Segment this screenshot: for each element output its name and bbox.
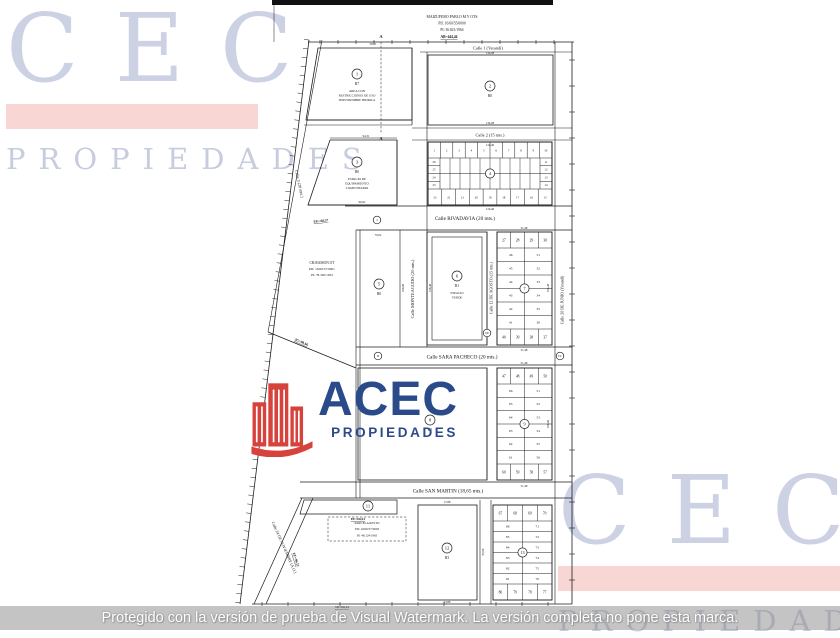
- trial-watermark-text: Protegido con la versión de prueba de Vi…: [102, 610, 739, 626]
- parcel-5-code: B0: [377, 292, 381, 296]
- lot-number: 30: [543, 238, 547, 242]
- monument-III-label: III: [485, 331, 488, 335]
- street-label-san_martin: Calle SAN MARTIN (18,65 mts.): [413, 488, 484, 495]
- lot-number: 47: [502, 374, 506, 378]
- listing-photo-page: { "watermark_cec": { "text": "CEC", "sub…: [0, 0, 840, 630]
- acec-logo: ACEC PROPIEDADES: [250, 377, 458, 457]
- lot-number: 11: [545, 160, 548, 164]
- plan-line: [268, 332, 356, 368]
- dimension-label: 51,48: [521, 484, 528, 489]
- lot-number: 51: [537, 389, 541, 393]
- street-label-sara_pacheco: Calle SARA PACHECO (20 mts.): [427, 354, 498, 361]
- lot-number: 37: [543, 335, 547, 339]
- plan-title-line2: PII: 16/60/55/0000: [438, 22, 465, 26]
- lot-number: 12: [545, 168, 549, 172]
- boundary-hatch-tick: [293, 129, 298, 130]
- boundary-hatch-tick: [287, 182, 292, 183]
- boundary-hatch-tick: [297, 93, 302, 94]
- parcel-3-code: B0: [355, 170, 359, 174]
- boundary-hatch-tick: [248, 495, 253, 496]
- boundary-hatch-tick: [235, 602, 240, 603]
- boundary-hatch-tick: [299, 84, 304, 85]
- street-label-calle2: Calle 2 (15 mts.): [476, 133, 505, 138]
- parcel-1-note: SERVIDUMBRE HIDRICA: [339, 98, 376, 102]
- boundary-hatch-tick: [240, 566, 245, 567]
- lot-number: 57: [543, 470, 547, 474]
- lot-number: 83: [506, 556, 510, 560]
- buildings-icon: [250, 377, 314, 457]
- block-center-13-label: 13: [520, 550, 524, 555]
- boundary-hatch-tick: [269, 325, 274, 326]
- lot-number: 49: [530, 374, 534, 378]
- boundary-hatch-tick: [289, 164, 294, 165]
- lot-number: 23: [433, 195, 437, 199]
- parcel-3-note: EQUIPAMIENTO: [345, 182, 369, 186]
- dimension-label: 96,62: [359, 200, 366, 205]
- measurement-label: EG=68,37: [313, 218, 329, 224]
- lot-number: 45: [509, 266, 513, 270]
- lot-number: 34: [537, 293, 541, 297]
- monument-IV-label: IV: [558, 354, 562, 358]
- scan-top-bar: [272, 0, 553, 5]
- lot-number: 14: [545, 183, 549, 187]
- dimension-label: 51,48: [521, 348, 528, 353]
- boundary-hatch-tick: [250, 477, 255, 478]
- lot-number: 76: [536, 577, 540, 581]
- lot-number: 74: [536, 556, 540, 560]
- parcel-3-note: ESPACIO DE: [348, 177, 366, 181]
- parcel-6-code: B1: [455, 284, 459, 288]
- boundary-hatch-tick: [267, 343, 272, 344]
- dimension-label: 58,01: [370, 42, 377, 47]
- lot-number: 48: [516, 374, 520, 378]
- boundary-hatch-tick: [281, 227, 286, 228]
- lot-number: 65: [509, 402, 513, 406]
- boundary-hatch-tick: [271, 307, 276, 308]
- boundary-hatch-tick: [253, 459, 258, 460]
- lot-number: 50: [543, 374, 547, 378]
- lot-number: 6: [495, 148, 497, 152]
- lot-number: 86: [506, 524, 510, 528]
- lot-number: 44: [509, 280, 513, 284]
- plan-title-line1: MAIZUFERO PABLO M Y OTS: [426, 15, 477, 19]
- lot-number: 3: [458, 148, 460, 152]
- lot-number: 16: [530, 195, 534, 199]
- acec-logo-text: ACEC: [318, 377, 458, 423]
- parcel-6-note: ESPACIO: [451, 291, 465, 295]
- dimension-label: 110,46: [486, 207, 495, 212]
- annotation-line: PARCELA RESTO: [355, 521, 381, 525]
- boundary-hatch-tick: [264, 370, 269, 371]
- lot-number: 9: [533, 148, 535, 152]
- monument-II-label: II: [377, 354, 379, 358]
- plan-title-line3: PI: 36.821/1964: [440, 28, 463, 32]
- parcel-1-code: B7: [355, 82, 359, 86]
- lot-number: 54: [537, 429, 541, 433]
- lot-number: 53: [537, 416, 541, 420]
- plan-line: [254, 498, 302, 604]
- lot-number: 78: [528, 590, 532, 594]
- parcel-6-outline: [427, 232, 487, 345]
- lot-number: 17: [516, 195, 520, 199]
- lot-number: 2: [446, 148, 448, 152]
- lot-number: 43: [509, 293, 513, 297]
- lot-number: 72: [536, 535, 540, 539]
- boundary-hatch-tick: [252, 468, 257, 469]
- neighbor-line1: CH.RAMON OT: [310, 261, 336, 265]
- parcel-1-note: RESTRICCIONES DE USO: [339, 94, 377, 98]
- monument-I-label: I: [376, 218, 377, 222]
- lot-number: 80: [499, 590, 503, 594]
- lot-number: 5: [483, 148, 485, 152]
- lot-number: 13: [545, 175, 549, 179]
- boundary-hatch-tick: [301, 66, 306, 67]
- parcel-3-note: COMUNITARIO: [346, 186, 369, 190]
- plan-line: [240, 40, 309, 604]
- lot-number: 27: [502, 238, 506, 242]
- boundary-hatch-tick: [246, 513, 251, 514]
- lot-number: 1: [433, 148, 435, 152]
- measurement-label: EF=68,01: [351, 517, 366, 521]
- lot-number: 85: [506, 535, 510, 539]
- boundary-hatch-tick: [282, 218, 287, 219]
- lot-number: 55: [537, 442, 541, 446]
- lot-number: 82: [506, 566, 510, 570]
- parcel-12-label: 12: [445, 546, 450, 551]
- lot-number: 39: [516, 335, 520, 339]
- boundary-hatch-tick: [279, 245, 284, 246]
- lot-number: 66: [509, 389, 513, 393]
- boundary-hatch-tick: [295, 111, 300, 112]
- boundary-hatch-tick: [280, 236, 285, 237]
- lot-number: 20: [475, 195, 479, 199]
- lot-number: 35: [537, 307, 541, 311]
- boundary-hatch-tick: [243, 540, 248, 541]
- lot-number: 41: [509, 320, 513, 324]
- boundary-hatch-tick: [244, 531, 249, 532]
- lot-number: 19: [488, 195, 492, 199]
- parcel-11-outline: [300, 500, 397, 514]
- lot-number: 81: [506, 577, 510, 581]
- boundary-hatch-tick: [292, 138, 297, 139]
- lot-number: 73: [536, 545, 540, 549]
- trial-watermark-bar: Protegido con la versión de prueba de Vi…: [0, 606, 840, 630]
- lot-number: 77: [543, 590, 547, 594]
- lot-number: 10: [544, 148, 548, 152]
- lot-number: 63: [509, 429, 513, 433]
- street-label-agosto12: Calle 12 DE AGOSTO (15 mts.): [489, 261, 494, 314]
- section-marker-A: A: [379, 34, 383, 39]
- boundary-hatch-tick: [285, 191, 290, 192]
- plan-title-line4: AB=444,44: [441, 35, 458, 39]
- parcel-1-note: AREA CON: [349, 89, 366, 93]
- boundary-hatch-tick: [272, 298, 277, 299]
- dimension-label: 70,02: [375, 233, 382, 238]
- street-label-monteagudo: Calle MONTEAGUDO (20 mts.): [410, 259, 415, 318]
- boundary-hatch-tick: [300, 75, 305, 76]
- lot-number: 71: [536, 524, 540, 528]
- survey-plan-container: Calle 1 (Yerandí)Calle 2 (15 mts.)Calle …: [0, 0, 840, 635]
- parcel-3-outline: [308, 140, 397, 205]
- boundary-hatch-tick: [304, 39, 309, 40]
- boundary-hatch-tick: [265, 361, 270, 362]
- parcel-2-code: B0: [488, 94, 492, 98]
- boundary-hatch-tick: [268, 334, 273, 335]
- boundary-hatch-tick: [249, 486, 254, 487]
- lot-number: 7: [508, 148, 510, 152]
- lot-number: 32: [537, 266, 541, 270]
- boundary-hatch-tick: [294, 120, 299, 121]
- lot-number: 22: [447, 195, 451, 199]
- boundary-hatch-tick: [290, 156, 295, 157]
- acec-logo-subtext: PROPIEDADES: [318, 425, 458, 440]
- lot-number: 38: [530, 335, 534, 339]
- lot-number: 52: [537, 402, 541, 406]
- boundary-hatch-tick: [284, 200, 289, 201]
- lot-number: 40: [502, 335, 506, 339]
- boundary-hatch-tick: [296, 102, 301, 103]
- parcel-12-code: B3: [445, 556, 449, 560]
- lot-number: 64: [509, 416, 513, 420]
- boundary-hatch-tick: [278, 254, 283, 255]
- dimension-label: 17,88: [444, 500, 451, 505]
- block-center-9-label: 9: [523, 421, 525, 426]
- lot-number: 42: [509, 307, 513, 311]
- boundary-hatch-tick: [302, 57, 307, 58]
- lot-number: 25: [433, 168, 437, 172]
- street-label-calle1: Calle 1 (Yerandí): [473, 46, 503, 51]
- boundary-hatch-tick: [245, 522, 250, 523]
- lot-number: 4: [471, 148, 473, 152]
- lot-number: 60: [502, 470, 506, 474]
- lot-number: 46: [509, 253, 513, 257]
- parcel-6-note: VERDE: [452, 296, 463, 300]
- plan-line: [268, 40, 322, 332]
- lot-number: 67: [499, 511, 503, 515]
- parcel-11-label: 11: [366, 504, 371, 509]
- lot-number: 84: [506, 545, 510, 549]
- lot-number: 59: [516, 470, 520, 474]
- lot-number: 15: [544, 195, 548, 199]
- neighbor-line2: PII: 16/60/57/0001: [309, 267, 335, 271]
- lot-number: 79: [513, 590, 517, 594]
- lot-number: 21: [461, 195, 465, 199]
- dimension-label: 106,48: [546, 283, 551, 292]
- lot-number: 36: [537, 320, 541, 324]
- lot-number: 58: [530, 470, 534, 474]
- neighbor-line3: PI: 78.320/1952: [311, 273, 333, 277]
- boundary-hatch-tick: [288, 173, 293, 174]
- street-label-rivadavia: Calle RIVADAVIA (20 mts.): [435, 215, 495, 222]
- lot-number: 18: [502, 195, 506, 199]
- street-label-junio20: Calle 20 DE JUNIO (Yerandí): [560, 275, 565, 324]
- parcel-6-inner: [432, 237, 482, 340]
- lot-number: 70: [543, 511, 547, 515]
- lot-number: 33: [537, 280, 541, 284]
- boundary-hatch-tick: [247, 504, 252, 505]
- boundary-hatch-tick: [236, 593, 241, 594]
- lot-number: 23: [433, 183, 437, 187]
- boundary-hatch-tick: [275, 281, 280, 282]
- boundary-hatch-tick: [283, 209, 288, 210]
- dimension-label: 95,08: [481, 548, 486, 555]
- boundary-hatch-tick: [266, 352, 271, 353]
- boundary-hatch-tick: [241, 558, 246, 559]
- dimension-label: 100,08: [401, 283, 406, 292]
- boundary-hatch-tick: [237, 584, 242, 585]
- boundary-hatch-tick: [273, 290, 278, 291]
- lot-number: 29: [530, 238, 534, 242]
- street-label-noviembre24: Calle 24 DE NOVIEMBRE (A.O.): [271, 521, 299, 575]
- lot-number: 24: [433, 175, 437, 179]
- boundary-hatch-tick: [303, 48, 308, 49]
- lot-number: 26: [433, 160, 437, 164]
- lot-number: 62: [509, 442, 513, 446]
- survey-plan: Calle 1 (Yerandí)Calle 2 (15 mts.)Calle …: [0, 0, 840, 630]
- boundary-hatch-tick: [276, 272, 281, 273]
- lot-number: 31: [537, 253, 541, 257]
- annotation-line: PII: 16/60/57/0002: [355, 527, 380, 531]
- lot-number: 8: [520, 148, 522, 152]
- boundary-hatch-tick: [242, 549, 247, 550]
- lot-number: 61: [509, 456, 513, 460]
- boundary-hatch-tick: [291, 147, 296, 148]
- boundary-hatch-tick: [238, 575, 243, 576]
- block-center-7-label: 7: [523, 286, 525, 291]
- street-label-calle3: Calle 3 (20 mts.): [294, 169, 305, 198]
- lot-number: 56: [537, 456, 541, 460]
- lot-number: 75: [536, 566, 540, 570]
- lot-number: 68: [513, 511, 517, 515]
- annotation-line: PI: 48.124/1965: [357, 533, 378, 537]
- lot-number: 28: [516, 238, 520, 242]
- lot-number: 69: [528, 511, 532, 515]
